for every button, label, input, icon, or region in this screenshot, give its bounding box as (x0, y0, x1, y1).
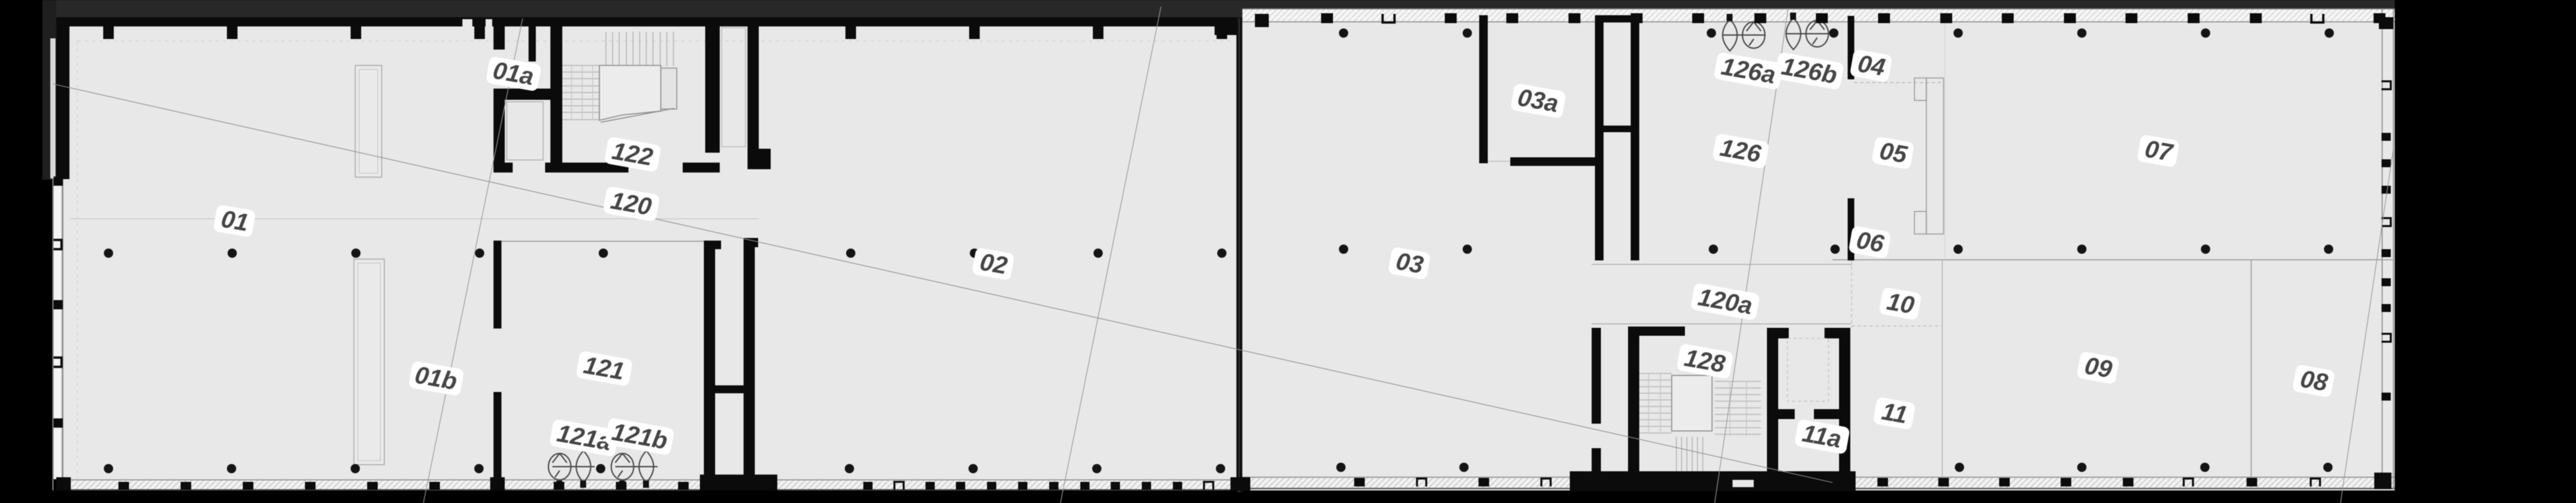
svg-text:08: 08 (2298, 365, 2330, 397)
svg-text:10: 10 (1885, 288, 1916, 319)
svg-text:06: 06 (1854, 226, 1886, 258)
svg-text:05: 05 (1877, 137, 1910, 169)
svg-text:02: 02 (978, 248, 1009, 280)
svg-text:04: 04 (1856, 50, 1887, 81)
svg-text:09: 09 (2082, 352, 2114, 383)
svg-text:03: 03 (1394, 247, 1426, 279)
svg-text:01: 01 (219, 205, 251, 237)
svg-text:11: 11 (1880, 397, 1910, 428)
